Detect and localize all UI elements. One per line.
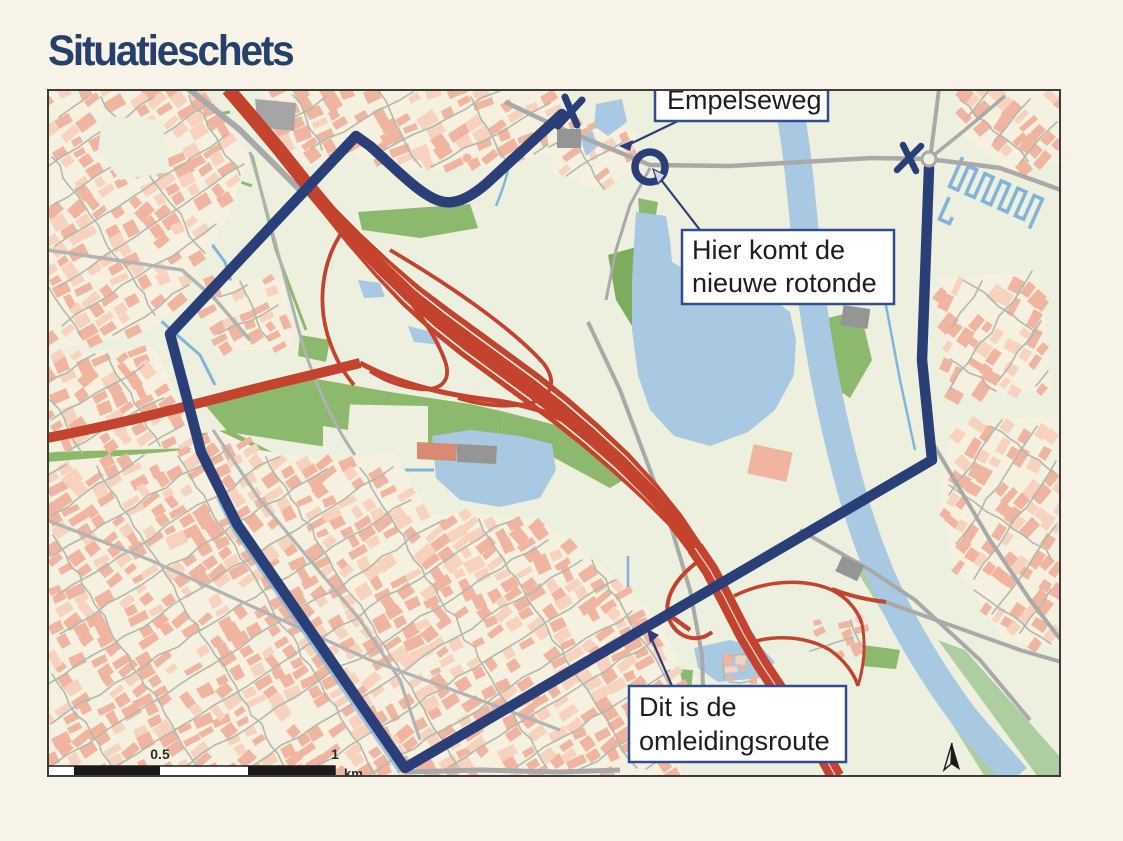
svg-text:1: 1: [331, 746, 339, 762]
svg-text:omleidingsroute: omleidingsroute: [639, 726, 830, 756]
svg-text:Empelseweg: Empelseweg: [667, 89, 822, 115]
svg-text:Dit is de: Dit is de: [639, 692, 737, 722]
svg-text:0.5: 0.5: [150, 746, 170, 762]
svg-text:nieuwe rotonde: nieuwe rotonde: [692, 268, 877, 298]
svg-text:Hier komt de: Hier komt de: [692, 235, 845, 265]
